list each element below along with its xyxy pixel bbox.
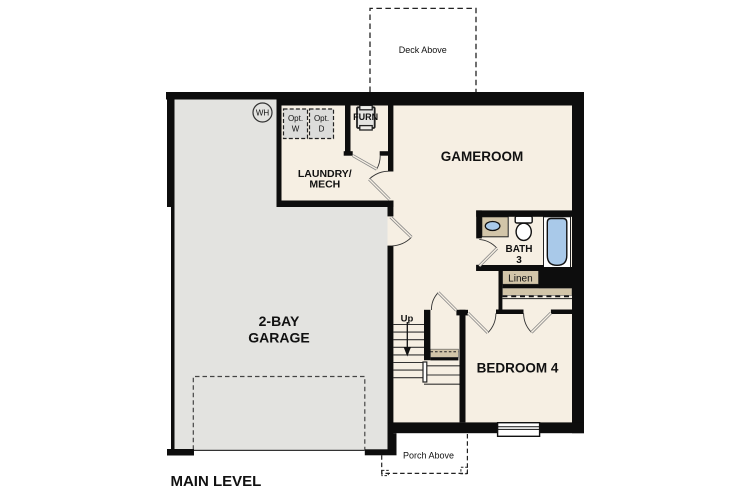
svg-text:Linen: Linen (508, 273, 532, 284)
svg-text:Opt.: Opt. (288, 114, 303, 123)
svg-text:WH: WH (256, 109, 270, 118)
svg-text:BATH: BATH (505, 244, 532, 255)
svg-text:Opt.: Opt. (314, 114, 329, 123)
svg-text:MAIN LEVEL: MAIN LEVEL (170, 473, 261, 490)
svg-text:MECH: MECH (309, 179, 340, 191)
svg-text:BEDROOM 4: BEDROOM 4 (477, 361, 559, 376)
svg-text:Deck Above: Deck Above (399, 45, 447, 55)
svg-text:Porch Above: Porch Above (403, 451, 454, 461)
svg-text:GAMEROOM: GAMEROOM (441, 149, 524, 164)
svg-text:3: 3 (516, 255, 522, 266)
svg-text:D: D (319, 125, 325, 134)
svg-text:2-BAY: 2-BAY (259, 313, 300, 329)
svg-text:GARAGE: GARAGE (248, 330, 309, 346)
svg-text:W: W (292, 125, 300, 134)
svg-text:Up: Up (401, 313, 414, 324)
svg-text:FURN: FURN (353, 112, 378, 122)
